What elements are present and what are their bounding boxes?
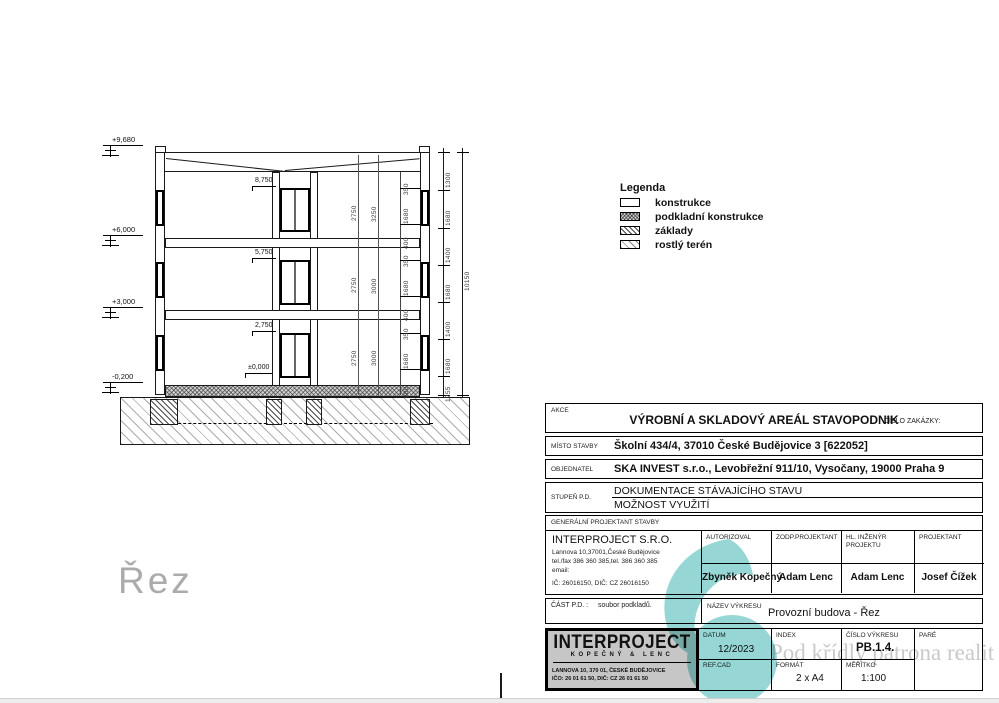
role-label: PROJEKTANT	[919, 534, 962, 541]
level-label: +3,000	[103, 298, 149, 306]
level-label: +6,000	[103, 226, 149, 234]
window	[156, 335, 164, 371]
dimension-tick	[438, 265, 450, 266]
stupen-label: STUPEŇ P.D.	[551, 494, 591, 501]
native-ground-swatch	[620, 240, 640, 249]
window	[421, 190, 429, 226]
legend-item-label: podkladní konstrukce	[655, 211, 764, 223]
foundation-dashed-line	[158, 423, 433, 424]
role-label: HL. INŽENÝR PROJEKTU	[846, 534, 908, 550]
stupen-value-2: MOŽNOST VYUŽITÍ	[614, 499, 709, 511]
level-marker: +9,680	[103, 136, 149, 157]
foundations-swatch	[620, 226, 640, 235]
dimension-line	[358, 155, 359, 395]
cast-pd-label: ČÁST P.D. :	[551, 602, 588, 609]
divider	[612, 497, 982, 498]
overall-dimension-line	[462, 148, 463, 397]
section-title: Řez	[118, 560, 193, 602]
level-label: +9,680	[103, 136, 149, 144]
teal-logo-watermark	[632, 537, 797, 703]
shaft-door	[280, 260, 310, 305]
dimension-tick	[438, 228, 450, 229]
dimension-tick	[438, 152, 450, 153]
dimension-line	[400, 172, 401, 395]
dimension-line	[443, 148, 444, 397]
shaft-door	[280, 333, 310, 378]
window	[421, 262, 429, 298]
floor-slab	[165, 238, 420, 248]
misto-label: MÍSTO STAVBY	[551, 443, 598, 450]
legend-item-label: základy	[655, 225, 693, 237]
level-marker: +6,000	[103, 226, 149, 247]
gray-text-watermark: Pod křídly patrona realit	[770, 640, 994, 666]
legend-title: Legenda	[620, 182, 840, 194]
objednatel-value: SKA INVEST s.r.o., Levobřežní 911/10, Vy…	[614, 463, 944, 475]
legend: Legenda konstrukce podkladní konstrukce …	[620, 182, 840, 252]
row-akce: AKCE VÝROBNÍ A SKLADOVÝ AREÁL STAVOPODNI…	[545, 403, 983, 433]
level-marker: +3,000	[103, 298, 149, 319]
cislo-vykresu-label: ČÍSLO VÝKRESU	[846, 632, 898, 639]
legend-item-label: konstrukce	[655, 197, 711, 209]
divider	[914, 530, 915, 593]
legend-item-label: rostlý terén	[655, 239, 712, 251]
window	[156, 190, 164, 226]
dimension-line	[378, 155, 379, 395]
window	[156, 262, 164, 298]
shaft-door	[280, 188, 310, 232]
base-layer-swatch	[620, 212, 640, 221]
construction-swatch	[620, 198, 640, 207]
inner-level: ±0,000	[245, 364, 272, 374]
drawing-sheet: +9,680 +6,000 +3,000 -0,200	[0, 0, 999, 703]
dimension-tick	[438, 376, 450, 377]
gen-projektant-label: GENERÁLNÍ PROJEKTANT STAVBY	[551, 519, 659, 526]
floor-slab	[165, 310, 420, 320]
role-name: Josef Čížek	[915, 572, 983, 583]
legend-item: rostlý terén	[620, 239, 820, 251]
divider	[841, 530, 842, 593]
dimension-tick	[400, 296, 421, 297]
foundation-pad	[266, 399, 282, 425]
dimension-tick	[400, 369, 421, 370]
dimension-tick	[457, 395, 469, 396]
dimension-tick	[438, 190, 450, 191]
cislo-zakazky-label: ČÍSLO ZAKÁZKY:	[884, 418, 940, 425]
level-marker: -0,200	[103, 373, 149, 394]
divider	[546, 530, 982, 531]
row-objednatel: OBJEDNATEL SKA INVEST s.r.o., Levobřežní…	[545, 459, 983, 479]
dimension-tick	[438, 339, 450, 340]
dimension-tick	[400, 224, 421, 225]
legend-item: konstrukce	[620, 197, 820, 209]
fold-mark	[500, 673, 502, 698]
inner-level: 8,750	[252, 177, 276, 187]
company-email: email:	[552, 567, 569, 574]
pare-label: PARÉ	[919, 632, 936, 639]
shaft-wall	[272, 172, 280, 395]
inner-level: 5,750	[252, 249, 276, 259]
meritko-value: 1:100	[861, 673, 886, 684]
row-stupen-pd: STUPEŇ P.D. DOKUMENTACE STÁVAJÍCÍHO STAV…	[545, 482, 983, 513]
role-name: Adam Lenc	[842, 572, 913, 583]
dimension-tick	[438, 302, 450, 303]
dimension-tick	[457, 152, 469, 153]
section-drawing: +9,680 +6,000 +3,000 -0,200	[0, 0, 500, 470]
legend-item: základy	[620, 225, 820, 237]
window	[421, 335, 429, 371]
foundation-pad	[410, 399, 430, 425]
format-value: 2 x A4	[796, 673, 824, 684]
foundation-pad	[306, 399, 322, 425]
stupen-value-1: DOKUMENTACE STÁVAJÍCÍHO STAVU	[614, 485, 802, 497]
shaft-wall	[310, 172, 318, 395]
objednatel-label: OBJEDNATEL	[551, 466, 593, 473]
subfloor-layer	[165, 385, 420, 397]
page-bottom-edge	[0, 698, 999, 703]
row-misto-stavby: MÍSTO STAVBY Školní 434/4, 37010 České B…	[545, 436, 983, 456]
misto-value: Školní 434/4, 37010 České Budějovice 3 […	[614, 440, 868, 452]
inner-level: 2,750	[252, 322, 276, 332]
legend-item: podkladní konstrukce	[620, 211, 820, 223]
level-label: -0,200	[103, 373, 149, 381]
foundation-pad	[150, 399, 178, 425]
